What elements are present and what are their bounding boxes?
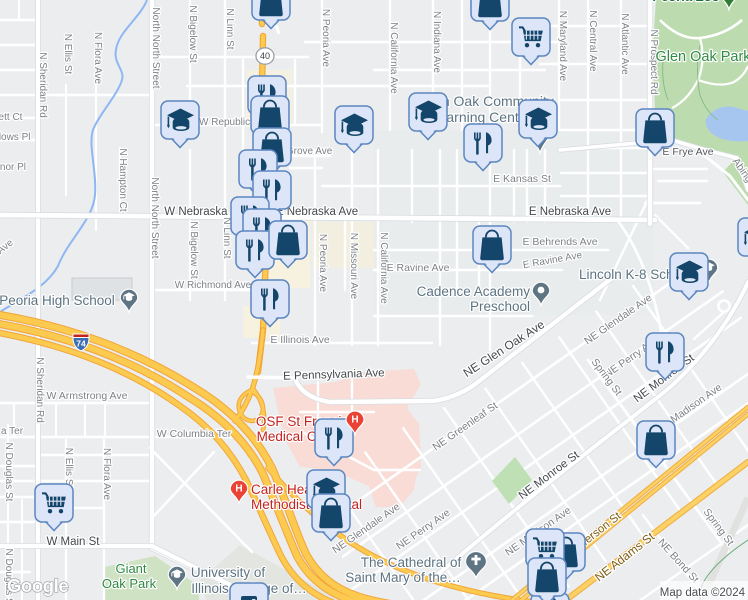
svg-text:74: 74 (76, 339, 86, 349)
svg-text:North North Street: North North Street (149, 177, 160, 258)
svg-text:N Linn St: N Linn St (224, 8, 235, 49)
svg-text:40: 40 (260, 51, 270, 61)
svg-text:Glen Oak Park: Glen Oak Park (655, 49, 748, 65)
svg-text:N Sheridan Rd: N Sheridan Rd (37, 52, 48, 118)
svg-text:The Cathedral of: The Cathedral of (361, 555, 462, 570)
svg-text:N Flora Ave: N Flora Ave (101, 448, 112, 500)
svg-text:N California Ave: N California Ave (388, 22, 399, 94)
svg-text:N Ellis St: N Ellis St (62, 34, 73, 75)
svg-text:N Bigelow St: N Bigelow St (188, 221, 199, 278)
svg-text:E Nebraska Ave: E Nebraska Ave (529, 206, 611, 218)
svg-text:N Indiana Ave: N Indiana Ave (431, 11, 442, 74)
svg-text:Peoria High School: Peoria High School (0, 293, 115, 308)
svg-text:Map data ©2024: Map data ©2024 (660, 587, 746, 599)
svg-text:Giant: Giant (115, 561, 146, 576)
svg-text:Google: Google (7, 575, 68, 596)
svg-text:E Frye Ave: E Frye Ave (662, 146, 713, 158)
svg-text:Meadows Pl: Meadows Pl (0, 132, 30, 143)
svg-text:Oak Park: Oak Park (102, 576, 157, 591)
svg-text:Manor Pl: Manor Pl (0, 162, 26, 173)
svg-text:W Armstrong Ave: W Armstrong Ave (47, 390, 128, 402)
svg-text:N Bigelow St: N Bigelow St (187, 5, 198, 62)
svg-text:H: H (351, 415, 358, 426)
svg-text:N Atlantic Ave: N Atlantic Ave (619, 13, 630, 75)
svg-text:E Behrends Ave: E Behrends Ave (522, 236, 597, 248)
svg-text:University of: University of (191, 565, 266, 580)
svg-text:E Illinois Ave: E Illinois Ave (270, 334, 329, 346)
svg-text:N Hampton Ct: N Hampton Ct (117, 148, 128, 212)
svg-text:Peoria Zoo: Peoria Zoo (652, 0, 719, 4)
svg-text:N Sheridan Rd: N Sheridan Rd (34, 357, 45, 423)
svg-text:N Central Ave: N Central Ave (587, 10, 598, 72)
svg-text:W Columbia Ter: W Columbia Ter (157, 428, 232, 440)
svg-text:H: H (235, 484, 242, 495)
svg-text:N Ellis St: N Ellis St (63, 448, 74, 489)
svg-text:E Kansas St: E Kansas St (493, 173, 551, 185)
svg-text:a Ter: a Ter (1, 426, 24, 437)
svg-text:Saint Mary of the…: Saint Mary of the… (345, 570, 461, 585)
svg-text:Cadence Academy: Cadence Academy (417, 284, 531, 299)
svg-text:N Peoria Ave: N Peoria Ave (320, 9, 331, 68)
svg-text:N Peoria Ave: N Peoria Ave (317, 234, 328, 293)
svg-text:Bartlett Ct: Bartlett Ct (0, 112, 23, 123)
svg-text:W Richmond Ave: W Richmond Ave (175, 280, 252, 291)
svg-text:N Flora Ave: N Flora Ave (92, 32, 103, 84)
svg-text:N Missouri Ave: N Missouri Ave (348, 233, 359, 300)
svg-text:North North Street: North North Street (150, 7, 161, 88)
svg-text:N Maryland Ave: N Maryland Ave (557, 11, 568, 82)
svg-text:E Ravine Ave: E Ravine Ave (387, 262, 450, 274)
svg-text:N Douglas St: N Douglas St (3, 443, 14, 502)
svg-text:W Main St: W Main St (46, 536, 100, 548)
svg-text:Preschool: Preschool (470, 299, 530, 314)
